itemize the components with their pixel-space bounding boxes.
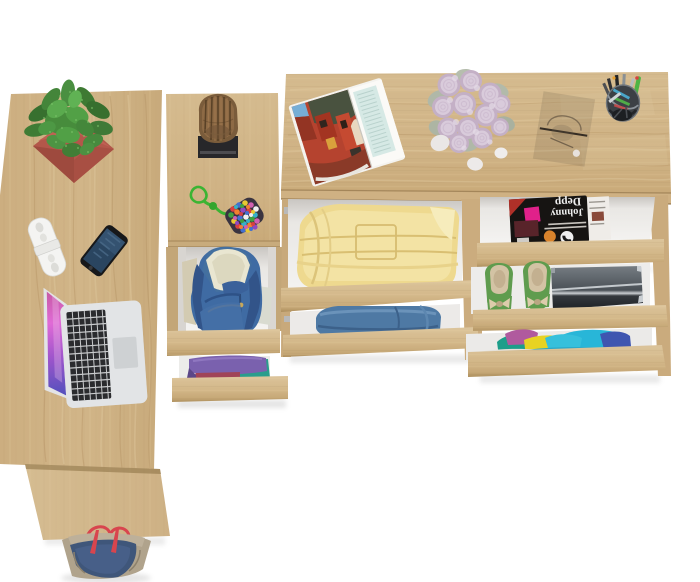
svg-text:Depp: Depp: [555, 195, 582, 208]
